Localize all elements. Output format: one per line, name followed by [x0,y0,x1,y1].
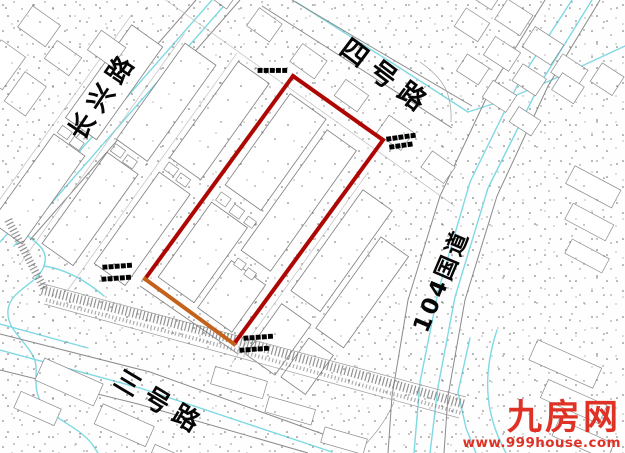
survey-dots-overlay [0,0,625,453]
watermark-brand-logo: 九房网 [463,401,621,436]
watermark-site-url: www.999house.com [463,437,621,451]
map-canvas: ■■■■■ ■■■■■ ■■■■ ■■■■■ ■■■■■ ■■■■■ ■■■■■… [0,0,625,453]
planning-map: ■■■■■ ■■■■■ ■■■■ ■■■■■ ■■■■■ ■■■■■ ■■■■■… [0,0,625,453]
corner-marker-north: ■■■■■ [257,66,288,74]
watermark: 九房网 www.999house.com [463,401,621,451]
